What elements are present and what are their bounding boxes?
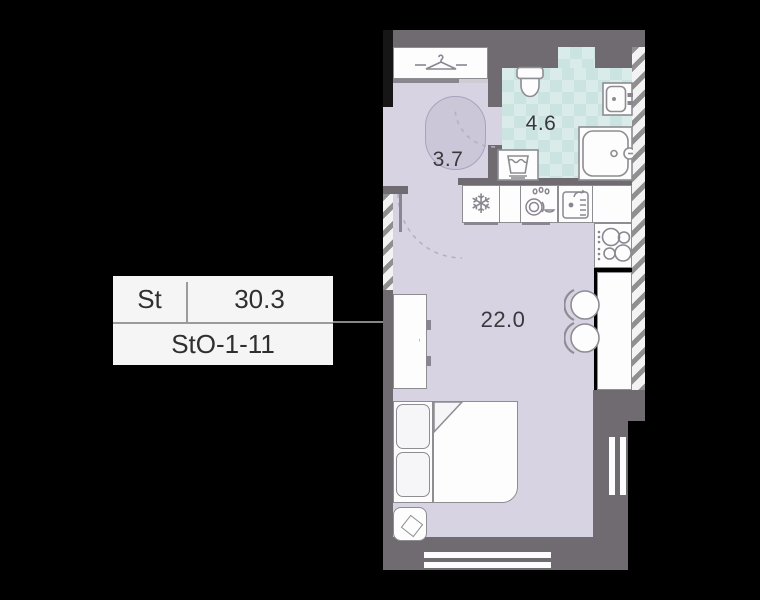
entrance-door-leaf bbox=[399, 194, 402, 232]
wardrobe bbox=[393, 294, 427, 389]
hall-closet bbox=[393, 47, 488, 79]
window-right-pane-1 bbox=[609, 437, 615, 495]
wall-block-above-toilet bbox=[488, 47, 558, 68]
wall-top bbox=[383, 30, 645, 47]
fridge: ❄ bbox=[462, 185, 500, 223]
wall-left-lower bbox=[383, 290, 393, 570]
unit-type-label: St bbox=[137, 284, 162, 315]
kitchen-sink-icon bbox=[561, 187, 591, 221]
dishwasher-icon bbox=[522, 186, 556, 220]
unit-id-label: StO-1-11 bbox=[171, 329, 275, 360]
living-area-label: 22.0 bbox=[463, 307, 543, 333]
bathroom-floor-upper bbox=[558, 47, 595, 68]
floor-plan-page: St 30.3 StO-1-11 bbox=[0, 0, 760, 600]
unit-area-cell: 30.3 bbox=[186, 276, 333, 322]
dishwasher bbox=[520, 185, 558, 223]
pillow bbox=[396, 452, 430, 497]
kitchen-counter-vertical bbox=[594, 223, 632, 268]
wall-left-hatched bbox=[383, 194, 393, 290]
stove-burners-icon bbox=[596, 225, 631, 266]
bathtub-icon bbox=[578, 126, 633, 181]
unit-type-cell: St bbox=[113, 276, 186, 322]
unit-id-cell: StO-1-11 bbox=[113, 323, 333, 365]
hanger-icon bbox=[413, 53, 469, 73]
table bbox=[597, 272, 632, 390]
unit-card[interactable]: St 30.3 StO-1-11 bbox=[113, 276, 333, 365]
washing-machine-icon bbox=[497, 149, 539, 181]
blanket-fold bbox=[433, 401, 464, 434]
unit-area-value: 30.3 bbox=[234, 284, 285, 315]
pillow bbox=[396, 404, 430, 449]
bathroom-area-label: 4.6 bbox=[513, 112, 569, 136]
window-bottom-pane-1 bbox=[424, 552, 551, 558]
wall-left-black bbox=[383, 30, 393, 107]
chair-icon bbox=[564, 288, 602, 322]
cabinet-rail-2 bbox=[522, 222, 550, 225]
cabinet-rail-1 bbox=[464, 222, 498, 225]
hallway-area-label: 3.7 bbox=[420, 148, 476, 172]
kitchen-sink bbox=[558, 185, 593, 223]
card-vertical-divider bbox=[186, 282, 188, 322]
living-door-arc bbox=[394, 190, 466, 262]
wall-block-above-sink bbox=[595, 47, 632, 68]
window-right-pane-2 bbox=[620, 437, 626, 495]
closet-rail-light bbox=[459, 79, 488, 83]
toilet-icon bbox=[515, 66, 545, 106]
closet-rail-dark bbox=[393, 79, 459, 83]
wardrobe-hinge bbox=[426, 320, 431, 330]
bath-sink-icon bbox=[602, 82, 634, 116]
card-connector-line bbox=[333, 321, 383, 323]
snowflake-icon: ❄ bbox=[470, 191, 493, 218]
window-bottom-pane-2 bbox=[424, 562, 551, 568]
entrance-opening bbox=[383, 107, 393, 187]
chair-icon bbox=[564, 321, 602, 355]
hanger-icon bbox=[400, 312, 420, 368]
wardrobe-hinge bbox=[426, 356, 431, 366]
wall-right-block bbox=[593, 390, 645, 421]
bathroom-door-arc bbox=[450, 102, 500, 152]
